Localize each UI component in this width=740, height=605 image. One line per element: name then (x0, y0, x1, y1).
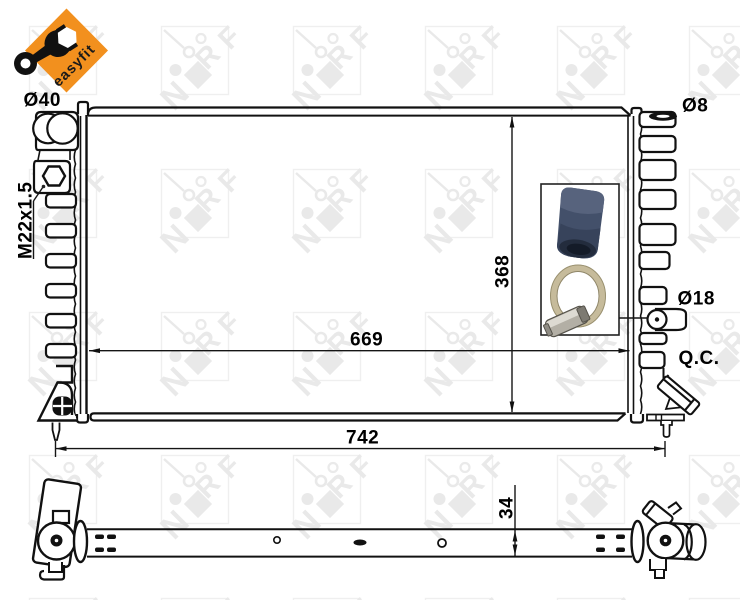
svg-text:742: 742 (346, 428, 379, 449)
svg-text:Ø40: Ø40 (24, 90, 61, 111)
svg-text:Ø8: Ø8 (682, 96, 708, 117)
svg-text:669: 669 (350, 330, 383, 351)
svg-text:Ø18: Ø18 (678, 289, 715, 310)
svg-text:368: 368 (493, 255, 514, 288)
svg-text:Q.C.: Q.C. (679, 348, 720, 369)
svg-text:34: 34 (497, 497, 518, 519)
